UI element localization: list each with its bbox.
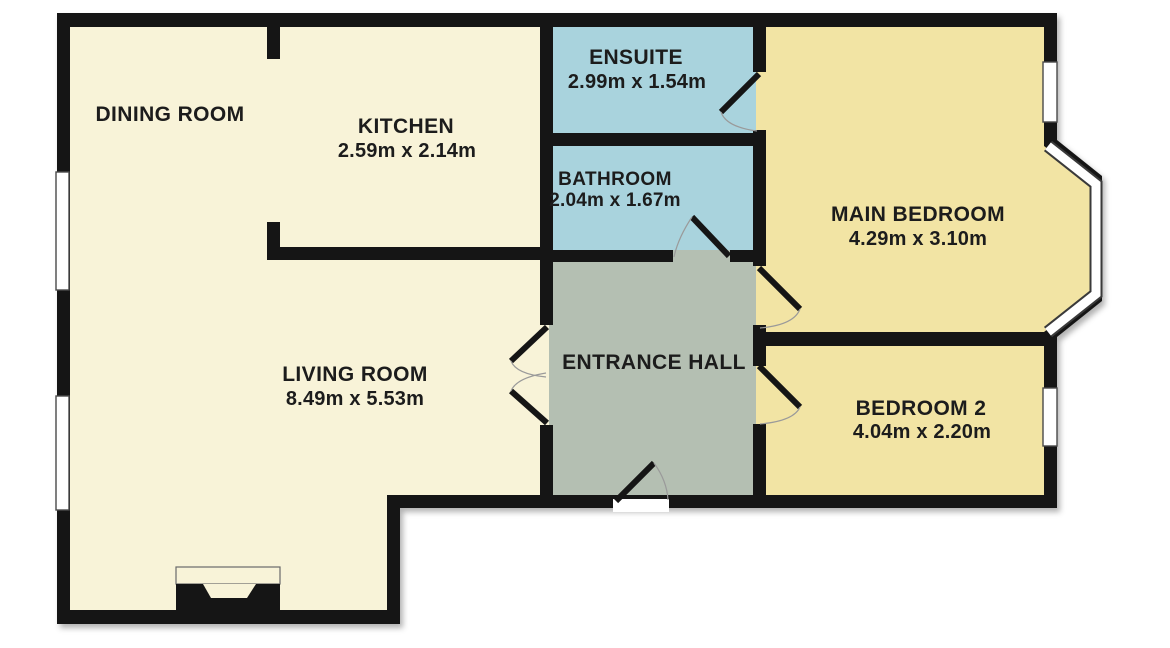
wall-segment bbox=[546, 250, 673, 262]
living-room-dims: 8.49m x 5.53m bbox=[286, 388, 424, 410]
bathroom-label: BATHROOM bbox=[558, 169, 672, 190]
fireplace-hearth bbox=[176, 567, 280, 584]
fireplace-recess bbox=[203, 584, 256, 598]
main-bedroom-dims: 4.29m x 3.10m bbox=[849, 228, 987, 250]
hall-floor bbox=[553, 262, 756, 495]
ensuite-dims: 2.99m x 1.54m bbox=[568, 71, 706, 93]
wall-segment bbox=[753, 424, 766, 503]
bedroom2-dims: 4.04m x 2.20m bbox=[853, 421, 991, 443]
wall-segment bbox=[540, 425, 553, 503]
window-bedroom2-icon bbox=[1043, 388, 1057, 446]
wall-segment bbox=[753, 130, 766, 266]
wall-segment bbox=[553, 133, 753, 146]
wall-segment bbox=[753, 325, 766, 366]
bathroom-dims: 2.04m x 1.67m bbox=[549, 190, 680, 211]
living-floor-door-gap-french bbox=[540, 325, 549, 425]
living-room-label: LIVING ROOM bbox=[282, 363, 428, 386]
entrance-hall-label: ENTRANCE HALL bbox=[562, 351, 746, 374]
wall-segment bbox=[267, 247, 553, 260]
fireplace bbox=[176, 567, 280, 612]
main-bedroom-floor bbox=[756, 27, 1092, 332]
kitchen-dims: 2.59m x 2.14m bbox=[338, 140, 476, 162]
kitchen-label: KITCHEN bbox=[358, 115, 454, 138]
ensuite-label: ENSUITE bbox=[589, 46, 683, 69]
wall-segment bbox=[267, 13, 280, 59]
wall-segment bbox=[540, 13, 553, 325]
floorplan-canvas: DINING ROOM KITCHEN 2.59m x 2.14m ENSUIT… bbox=[0, 0, 1170, 648]
wall-segment bbox=[766, 332, 1044, 346]
wall-segment bbox=[730, 250, 753, 262]
dining-room-label: DINING ROOM bbox=[95, 103, 244, 126]
window-left-upper-icon bbox=[56, 172, 69, 290]
floorplan-svg: DINING ROOM KITCHEN 2.59m x 2.14m ENSUIT… bbox=[0, 0, 1170, 648]
window-left-lower-icon bbox=[56, 396, 69, 510]
bedroom2-label: BEDROOM 2 bbox=[856, 397, 987, 420]
wall-segment bbox=[753, 13, 766, 72]
window-main-bedroom-icon bbox=[1043, 62, 1057, 122]
front-door-opening bbox=[613, 499, 669, 512]
main-bedroom-label: MAIN BEDROOM bbox=[831, 203, 1005, 226]
